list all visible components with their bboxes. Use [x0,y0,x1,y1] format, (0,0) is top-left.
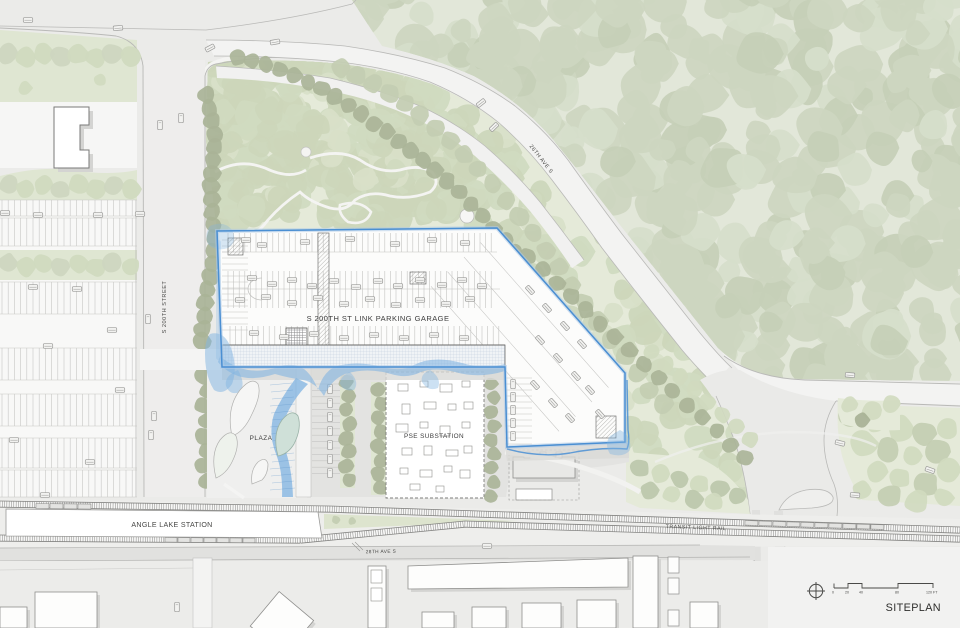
svg-text:20: 20 [845,591,849,595]
svg-text:S 200TH ST LINK PARKING GARAGE: S 200TH ST LINK PARKING GARAGE [307,314,450,323]
svg-text:120 FT: 120 FT [926,591,938,595]
svg-text:SITEPLAN: SITEPLAN [886,602,941,614]
svg-text:PSE SUBSTATION: PSE SUBSTATION [404,433,464,440]
svg-text:28TH AVE S: 28TH AVE S [366,549,397,556]
svg-text:40: 40 [859,591,863,595]
svg-text:ANGLE LAKE STATION: ANGLE LAKE STATION [131,521,212,529]
svg-text:S 200TH STREET: S 200TH STREET [162,281,168,334]
svg-text:PLAZA: PLAZA [250,435,273,442]
svg-text:0: 0 [832,591,834,595]
svg-text:80: 80 [895,591,899,595]
